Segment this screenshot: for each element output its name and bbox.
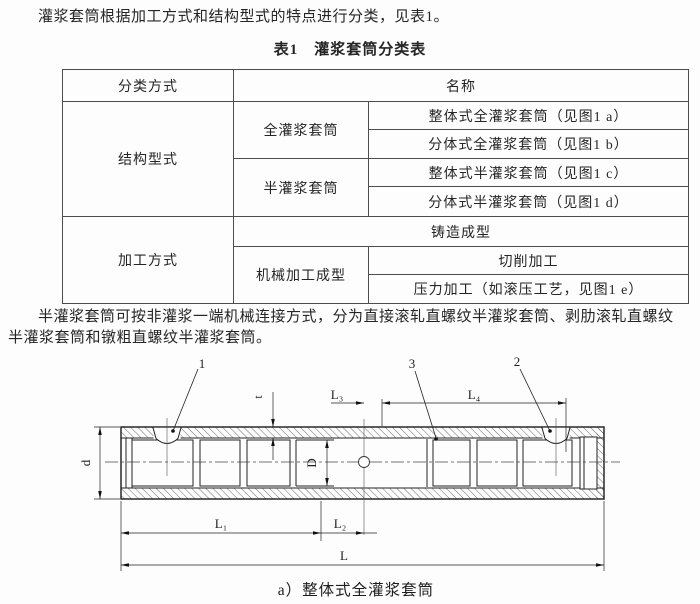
cell-split-half: 分体式半灌浆套筒（见图1 d） <box>369 187 689 217</box>
center-stop-hole <box>359 457 370 468</box>
cell-machining: 机械加工成型 <box>234 247 369 304</box>
classification-table: 分类方式 名称 结构型式 全灌浆套筒 整体式全灌浆套筒（见图1 a） 分体式全灌… <box>62 69 689 304</box>
paragraph-half-sleeve: 半灌浆套筒可按非灌浆一端机械连接方式，分为直接滚轧直螺纹半灌浆套筒、剥肋滚轧直螺… <box>8 307 696 349</box>
cell-cutting: 切削加工 <box>369 247 689 275</box>
document-page: 灌浆套筒根据加工方式和结构型式的特点进行分类，见表1。 表1 灌浆套筒分类表 分… <box>0 0 700 604</box>
dim-label-L4: L₄ <box>468 387 481 402</box>
paragraph-half-sleeve-line2: 半灌浆套筒和镦粗直螺纹半灌浆套筒。 <box>8 330 272 346</box>
end-seal-insert <box>580 437 597 489</box>
cell-split-full: 分体式全灌浆套筒（见图1 b） <box>369 130 689 159</box>
callout-3-label: 3 <box>409 356 416 371</box>
table-header-row: 分类方式 名称 <box>63 70 689 102</box>
dim-label-L2: L₂ <box>334 516 346 531</box>
cell-integral-half: 整体式半灌浆套筒（见图1 c） <box>369 159 689 187</box>
cell-half-grout-sleeve: 半灌浆套筒 <box>234 159 369 217</box>
sleeve-technical-drawing: 1 3 2 d t D L₃ L₄ L₁ L₂ L a）整体式全灌浆套筒 <box>0 352 700 604</box>
table-row: 结构型式 全灌浆套筒 整体式全灌浆套筒（见图1 a） <box>63 102 689 130</box>
dim-label-d: d <box>78 459 93 466</box>
dim-label-t: t <box>251 395 265 399</box>
figure-caption: a）整体式全灌浆套筒 <box>278 581 434 599</box>
dim-label-D: D <box>304 458 319 467</box>
cell-integral-full: 整体式全灌浆套筒（见图1 a） <box>369 102 689 130</box>
cell-structure-type: 结构型式 <box>63 102 234 217</box>
table-row: 加工方式 铸造成型 <box>63 217 689 247</box>
cell-process-method: 加工方式 <box>63 217 234 304</box>
cell-pressing: 压力加工（如滚压工艺，见图1 e） <box>369 275 689 304</box>
header-classification-method: 分类方式 <box>63 70 234 102</box>
callout-1-label: 1 <box>199 356 206 371</box>
table-title: 表1 灌浆套筒分类表 <box>0 38 700 59</box>
paragraph-half-sleeve-line1: 半灌浆套筒可按非灌浆一端机械连接方式，分为直接滚轧直螺纹半灌浆套筒、剥肋滚轧直螺… <box>8 307 696 328</box>
cell-full-grout-sleeve: 全灌浆套筒 <box>234 102 369 159</box>
paragraph-intro-text: 灌浆套筒根据加工方式和结构型式的特点进行分类，见表1。 <box>8 7 696 28</box>
header-name: 名称 <box>234 70 689 102</box>
left-end-collar <box>126 438 132 488</box>
callout-2-label: 2 <box>514 354 521 369</box>
dim-label-L: L <box>340 548 348 563</box>
dim-label-L1: L₁ <box>215 516 227 531</box>
shear-key-chambers <box>132 440 572 486</box>
dim-label-L3: L₃ <box>331 387 343 402</box>
paragraph-intro: 灌浆套筒根据加工方式和结构型式的特点进行分类，见表1。 <box>8 7 696 28</box>
cell-casting: 铸造成型 <box>234 217 689 247</box>
